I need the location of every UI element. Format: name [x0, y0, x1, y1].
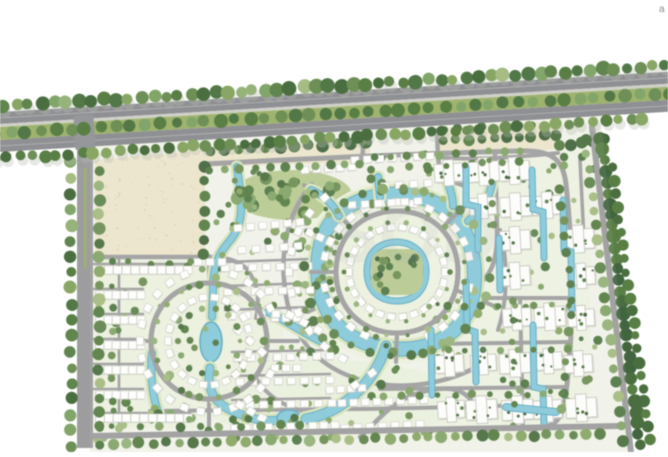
svg-text:a: a	[659, 4, 665, 15]
svg-text:SOD: SOD	[325, 190, 498, 279]
